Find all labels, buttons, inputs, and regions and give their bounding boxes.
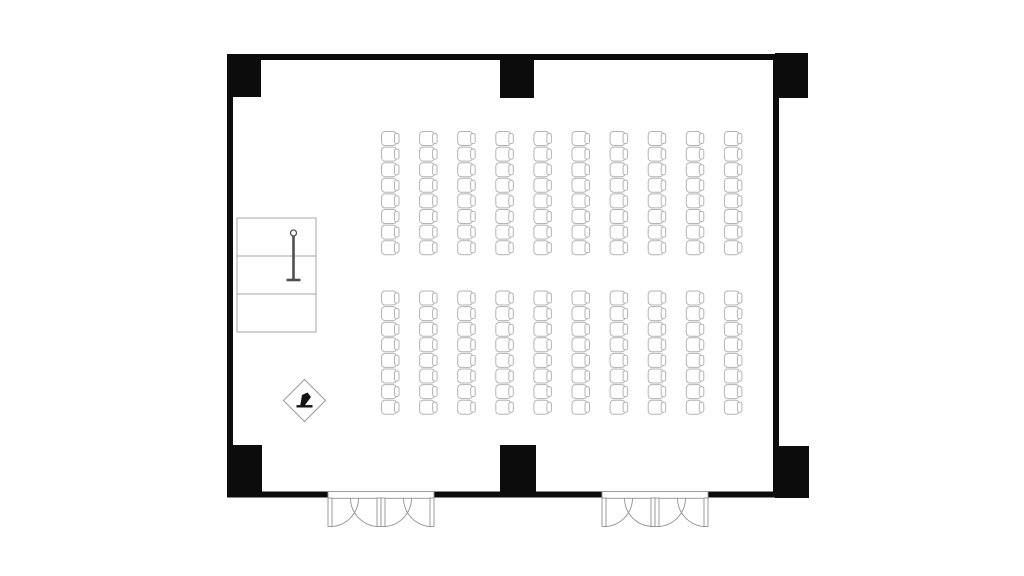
chair (534, 400, 552, 414)
chair-back (395, 180, 400, 190)
chair (648, 210, 666, 224)
chair-back (737, 180, 742, 190)
chair (724, 353, 742, 367)
chair (610, 291, 628, 305)
chair (572, 353, 590, 367)
chair (534, 194, 552, 208)
chair (648, 307, 666, 321)
chair-back (433, 134, 438, 144)
chair-back (737, 387, 742, 397)
chair (572, 338, 590, 352)
chair-back (509, 402, 514, 412)
chair-back (433, 165, 438, 175)
chair (572, 225, 590, 239)
chair (420, 194, 438, 208)
chair (572, 385, 590, 399)
chair-back (623, 387, 628, 397)
chair-back (661, 293, 666, 303)
chair (572, 241, 590, 255)
pillar-top-left (227, 54, 261, 97)
chair-back (433, 243, 438, 253)
chair (610, 322, 628, 336)
chair (496, 163, 514, 177)
chair (382, 163, 400, 177)
chair (724, 241, 742, 255)
chair (382, 385, 400, 399)
chair-back (547, 212, 552, 222)
chair (686, 322, 704, 336)
chair (458, 132, 476, 146)
chair-back (433, 212, 438, 222)
chair-back (737, 165, 742, 175)
chair (382, 307, 400, 321)
chair-back (661, 243, 666, 253)
chair-back (509, 134, 514, 144)
chair-back (699, 149, 704, 159)
chair-back (585, 243, 590, 253)
chair (458, 210, 476, 224)
chair-back (395, 309, 400, 319)
chair-back (471, 387, 476, 397)
chair (724, 194, 742, 208)
chair (420, 178, 438, 192)
chair-back (699, 387, 704, 397)
chair-back (433, 324, 438, 334)
chair-back (737, 340, 742, 350)
chair (724, 163, 742, 177)
chair-back (395, 324, 400, 334)
chair (496, 353, 514, 367)
door-leaf (381, 498, 385, 527)
chair (496, 241, 514, 255)
chair (458, 163, 476, 177)
chair-back (585, 402, 590, 412)
chair-back (623, 243, 628, 253)
chair (724, 178, 742, 192)
chair-back (509, 227, 514, 237)
chair (382, 369, 400, 383)
chair (534, 225, 552, 239)
chair-back (395, 149, 400, 159)
chair (686, 132, 704, 146)
door-leaf (651, 498, 655, 527)
chair-back (471, 309, 476, 319)
chair (686, 178, 704, 192)
chair (534, 353, 552, 367)
chair-back (547, 402, 552, 412)
chair-back (471, 149, 476, 159)
chair-back (623, 134, 628, 144)
chair-back (699, 355, 704, 365)
chair-back (699, 309, 704, 319)
chair (648, 385, 666, 399)
chair-back (661, 165, 666, 175)
chair-back (395, 227, 400, 237)
chair (724, 369, 742, 383)
chair (686, 307, 704, 321)
chair-back (395, 340, 400, 350)
chair (724, 132, 742, 146)
chair (686, 147, 704, 161)
chair-back (547, 180, 552, 190)
chair-back (623, 324, 628, 334)
chair-back (471, 324, 476, 334)
chair-back (395, 212, 400, 222)
chair-back (623, 196, 628, 206)
chair-back (661, 340, 666, 350)
chair-back (433, 227, 438, 237)
chair (534, 369, 552, 383)
chair (572, 291, 590, 305)
chair (648, 338, 666, 352)
chair (496, 147, 514, 161)
chair (496, 291, 514, 305)
chair-back (395, 402, 400, 412)
chair-back (395, 165, 400, 175)
chair-back (585, 227, 590, 237)
chair-back (547, 149, 552, 159)
chair-back (585, 212, 590, 222)
chair (534, 241, 552, 255)
chair (648, 147, 666, 161)
chair-back (547, 340, 552, 350)
chair (686, 163, 704, 177)
chair-back (699, 243, 704, 253)
chair (382, 400, 400, 414)
chair (458, 147, 476, 161)
chair-back (623, 293, 628, 303)
chair-back (395, 293, 400, 303)
chair-back (623, 309, 628, 319)
chair-back (471, 340, 476, 350)
chair (534, 322, 552, 336)
chair (686, 400, 704, 414)
chair (572, 322, 590, 336)
chair-back (699, 165, 704, 175)
chair-back (737, 212, 742, 222)
chair-back (471, 355, 476, 365)
chair (686, 338, 704, 352)
chair-back (623, 165, 628, 175)
chair (496, 225, 514, 239)
chair-back (509, 293, 514, 303)
chair-back (737, 227, 742, 237)
chair (496, 338, 514, 352)
chair-back (737, 149, 742, 159)
chair (648, 194, 666, 208)
chair-back (737, 196, 742, 206)
chair (534, 147, 552, 161)
chair (458, 291, 476, 305)
chair-back (661, 355, 666, 365)
chair-back (433, 340, 438, 350)
chair-back (737, 371, 742, 381)
chair (382, 225, 400, 239)
chair (534, 385, 552, 399)
chair (724, 307, 742, 321)
chair (420, 210, 438, 224)
head-table (237, 218, 316, 332)
wall-right (773, 54, 779, 498)
chair-back (547, 355, 552, 365)
chair-back (737, 355, 742, 365)
chair (458, 385, 476, 399)
chair (458, 400, 476, 414)
chair-back (585, 165, 590, 175)
chair (648, 291, 666, 305)
chair (572, 147, 590, 161)
chair-back (509, 371, 514, 381)
chair-back (585, 134, 590, 144)
chair-back (509, 196, 514, 206)
chair-back (547, 134, 552, 144)
chair-back (509, 387, 514, 397)
chair-back (585, 196, 590, 206)
chair-back (547, 196, 552, 206)
chair-back (737, 293, 742, 303)
chair-back (585, 324, 590, 334)
chair (648, 322, 666, 336)
chair-back (661, 324, 666, 334)
chair-back (699, 340, 704, 350)
chair (496, 210, 514, 224)
pillar-bottom-middle (500, 445, 536, 498)
chair-back (471, 134, 476, 144)
chair (686, 225, 704, 239)
chair (420, 385, 438, 399)
floor-plan (0, 0, 1024, 576)
chair (496, 400, 514, 414)
chair-back (433, 309, 438, 319)
chair-back (433, 355, 438, 365)
chair-back (471, 293, 476, 303)
chair (496, 322, 514, 336)
chair (420, 132, 438, 146)
chair-back (509, 180, 514, 190)
chair (648, 400, 666, 414)
chair-back (433, 402, 438, 412)
chair-back (395, 387, 400, 397)
chair-back (623, 355, 628, 365)
chair (724, 147, 742, 161)
pillar-top-right (775, 53, 808, 98)
wall-left (227, 54, 233, 498)
chair-back (585, 340, 590, 350)
chair (458, 369, 476, 383)
chair-back (661, 149, 666, 159)
chair (382, 132, 400, 146)
chair (420, 400, 438, 414)
chair (420, 307, 438, 321)
chair (610, 353, 628, 367)
chair-back (547, 293, 552, 303)
chair (572, 178, 590, 192)
chair-back (395, 134, 400, 144)
chair (496, 132, 514, 146)
chair-back (509, 309, 514, 319)
chair (382, 291, 400, 305)
chair-back (585, 355, 590, 365)
chair (610, 400, 628, 414)
chair (648, 353, 666, 367)
chair-back (623, 180, 628, 190)
chair (382, 353, 400, 367)
chair (686, 194, 704, 208)
chair-back (699, 196, 704, 206)
chair (420, 322, 438, 336)
chair-back (661, 196, 666, 206)
chair-back (661, 227, 666, 237)
chair (724, 400, 742, 414)
chair (572, 210, 590, 224)
chair-back (585, 180, 590, 190)
chair-back (661, 180, 666, 190)
chair (724, 322, 742, 336)
chair-back (509, 212, 514, 222)
chair (648, 225, 666, 239)
chair (724, 225, 742, 239)
chair (610, 338, 628, 352)
chair (610, 210, 628, 224)
chair (420, 147, 438, 161)
chair-back (623, 149, 628, 159)
chair-back (623, 212, 628, 222)
chair-back (661, 134, 666, 144)
door-leaf (328, 498, 332, 527)
chair-back (395, 355, 400, 365)
chair-back (623, 340, 628, 350)
chair-back (471, 402, 476, 412)
chair (496, 307, 514, 321)
chair-back (585, 371, 590, 381)
chair (496, 178, 514, 192)
chair (420, 338, 438, 352)
chair-back (395, 243, 400, 253)
chair (648, 369, 666, 383)
chair-back (623, 227, 628, 237)
chair-back (737, 324, 742, 334)
chair (420, 353, 438, 367)
door-leaf (602, 498, 606, 527)
chair-back (433, 196, 438, 206)
chair-back (699, 227, 704, 237)
chair-back (433, 149, 438, 159)
chair-back (471, 165, 476, 175)
chair (648, 132, 666, 146)
chair (458, 307, 476, 321)
chair-back (471, 196, 476, 206)
chair (382, 322, 400, 336)
chair-back (661, 402, 666, 412)
chair-back (433, 371, 438, 381)
chair-back (661, 371, 666, 381)
chair (724, 291, 742, 305)
chair (724, 385, 742, 399)
chair-back (699, 180, 704, 190)
chair (458, 338, 476, 352)
chair (610, 385, 628, 399)
chair-back (433, 387, 438, 397)
chair-back (737, 134, 742, 144)
chair-back (737, 402, 742, 412)
chair-back (737, 309, 742, 319)
chair (610, 147, 628, 161)
chair (724, 210, 742, 224)
chair-back (737, 243, 742, 253)
chair (420, 291, 438, 305)
chair (420, 163, 438, 177)
chair (420, 241, 438, 255)
chair (382, 178, 400, 192)
screen-stand-knob (291, 230, 297, 236)
chair-back (509, 149, 514, 159)
chair (420, 225, 438, 239)
chair (686, 353, 704, 367)
chair (610, 241, 628, 255)
chair-back (509, 340, 514, 350)
chair-back (699, 293, 704, 303)
chair-back (547, 371, 552, 381)
chair (534, 132, 552, 146)
chair (382, 147, 400, 161)
chair (610, 225, 628, 239)
door-leaf (377, 498, 381, 527)
chair-back (623, 402, 628, 412)
chair (572, 369, 590, 383)
chair (572, 194, 590, 208)
chair-back (509, 165, 514, 175)
chair-back (661, 387, 666, 397)
chair (686, 210, 704, 224)
chair-back (509, 243, 514, 253)
chair (610, 178, 628, 192)
door-threshold (602, 492, 708, 499)
chair-back (699, 402, 704, 412)
chair (458, 241, 476, 255)
chair (534, 307, 552, 321)
chair (458, 353, 476, 367)
pillar-top-middle (500, 54, 534, 98)
chair-back (623, 371, 628, 381)
chair (382, 194, 400, 208)
chair-back (547, 227, 552, 237)
door-leaf (704, 498, 708, 527)
chair (534, 291, 552, 305)
chair-back (547, 309, 552, 319)
chair (534, 338, 552, 352)
chair (610, 307, 628, 321)
chair-back (699, 324, 704, 334)
chair-back (509, 324, 514, 334)
floor-plan-canvas (0, 0, 1024, 576)
chair-back (547, 243, 552, 253)
chair (686, 385, 704, 399)
pillar-bottom-left (227, 445, 262, 498)
chair-back (433, 180, 438, 190)
chair-back (471, 371, 476, 381)
chair (572, 132, 590, 146)
chair (458, 178, 476, 192)
chair (458, 225, 476, 239)
chair-back (661, 309, 666, 319)
chair (496, 194, 514, 208)
chair (458, 194, 476, 208)
chair (382, 241, 400, 255)
chair-back (585, 293, 590, 303)
chair-back (471, 227, 476, 237)
chair-back (509, 355, 514, 365)
chair (610, 132, 628, 146)
